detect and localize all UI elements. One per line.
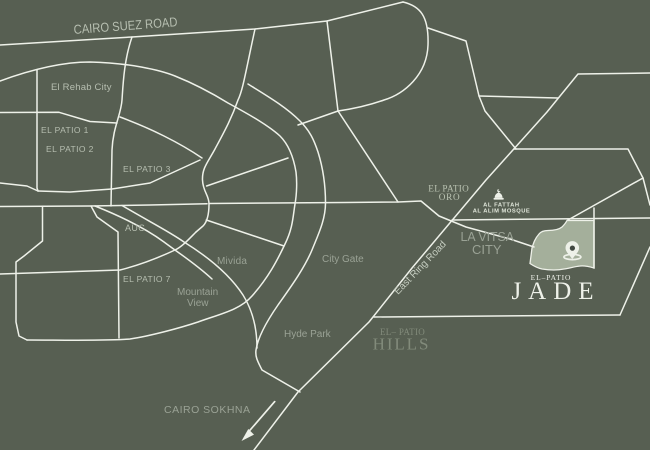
svg-text:CAIRO SOKHNA: CAIRO SOKHNA: [164, 404, 251, 416]
svg-text:Mountain: Mountain: [177, 287, 218, 298]
svg-text:AL FATTAH: AL FATTAH: [483, 203, 520, 209]
svg-text:EL PATIO 2: EL PATIO 2: [46, 144, 94, 154]
svg-text:AL ALIM MOSQUE: AL ALIM MOSQUE: [473, 209, 531, 215]
svg-text:EL PATIO 1: EL PATIO 1: [41, 125, 89, 135]
svg-text:HILLS: HILLS: [373, 335, 431, 354]
svg-text:AUC: AUC: [125, 223, 145, 233]
svg-text:View: View: [187, 298, 209, 309]
svg-text:ORO: ORO: [439, 192, 461, 202]
svg-text:El Rehab City: El Rehab City: [51, 82, 112, 93]
svg-text:CITY: CITY: [472, 242, 502, 257]
svg-text:CAIRO SUEZ ROAD: CAIRO SUEZ ROAD: [73, 14, 178, 37]
svg-text:JADE: JADE: [511, 278, 600, 305]
svg-text:Hyde Park: Hyde Park: [284, 329, 332, 340]
svg-text:EL PATIO 3: EL PATIO 3: [123, 164, 171, 174]
svg-text:EL PATIO 7: EL PATIO 7: [123, 274, 171, 284]
svg-text:City Gate: City Gate: [322, 254, 364, 265]
svg-text:Mivida: Mivida: [217, 256, 247, 267]
svg-text:East Ring Road: East Ring Road: [392, 239, 449, 297]
